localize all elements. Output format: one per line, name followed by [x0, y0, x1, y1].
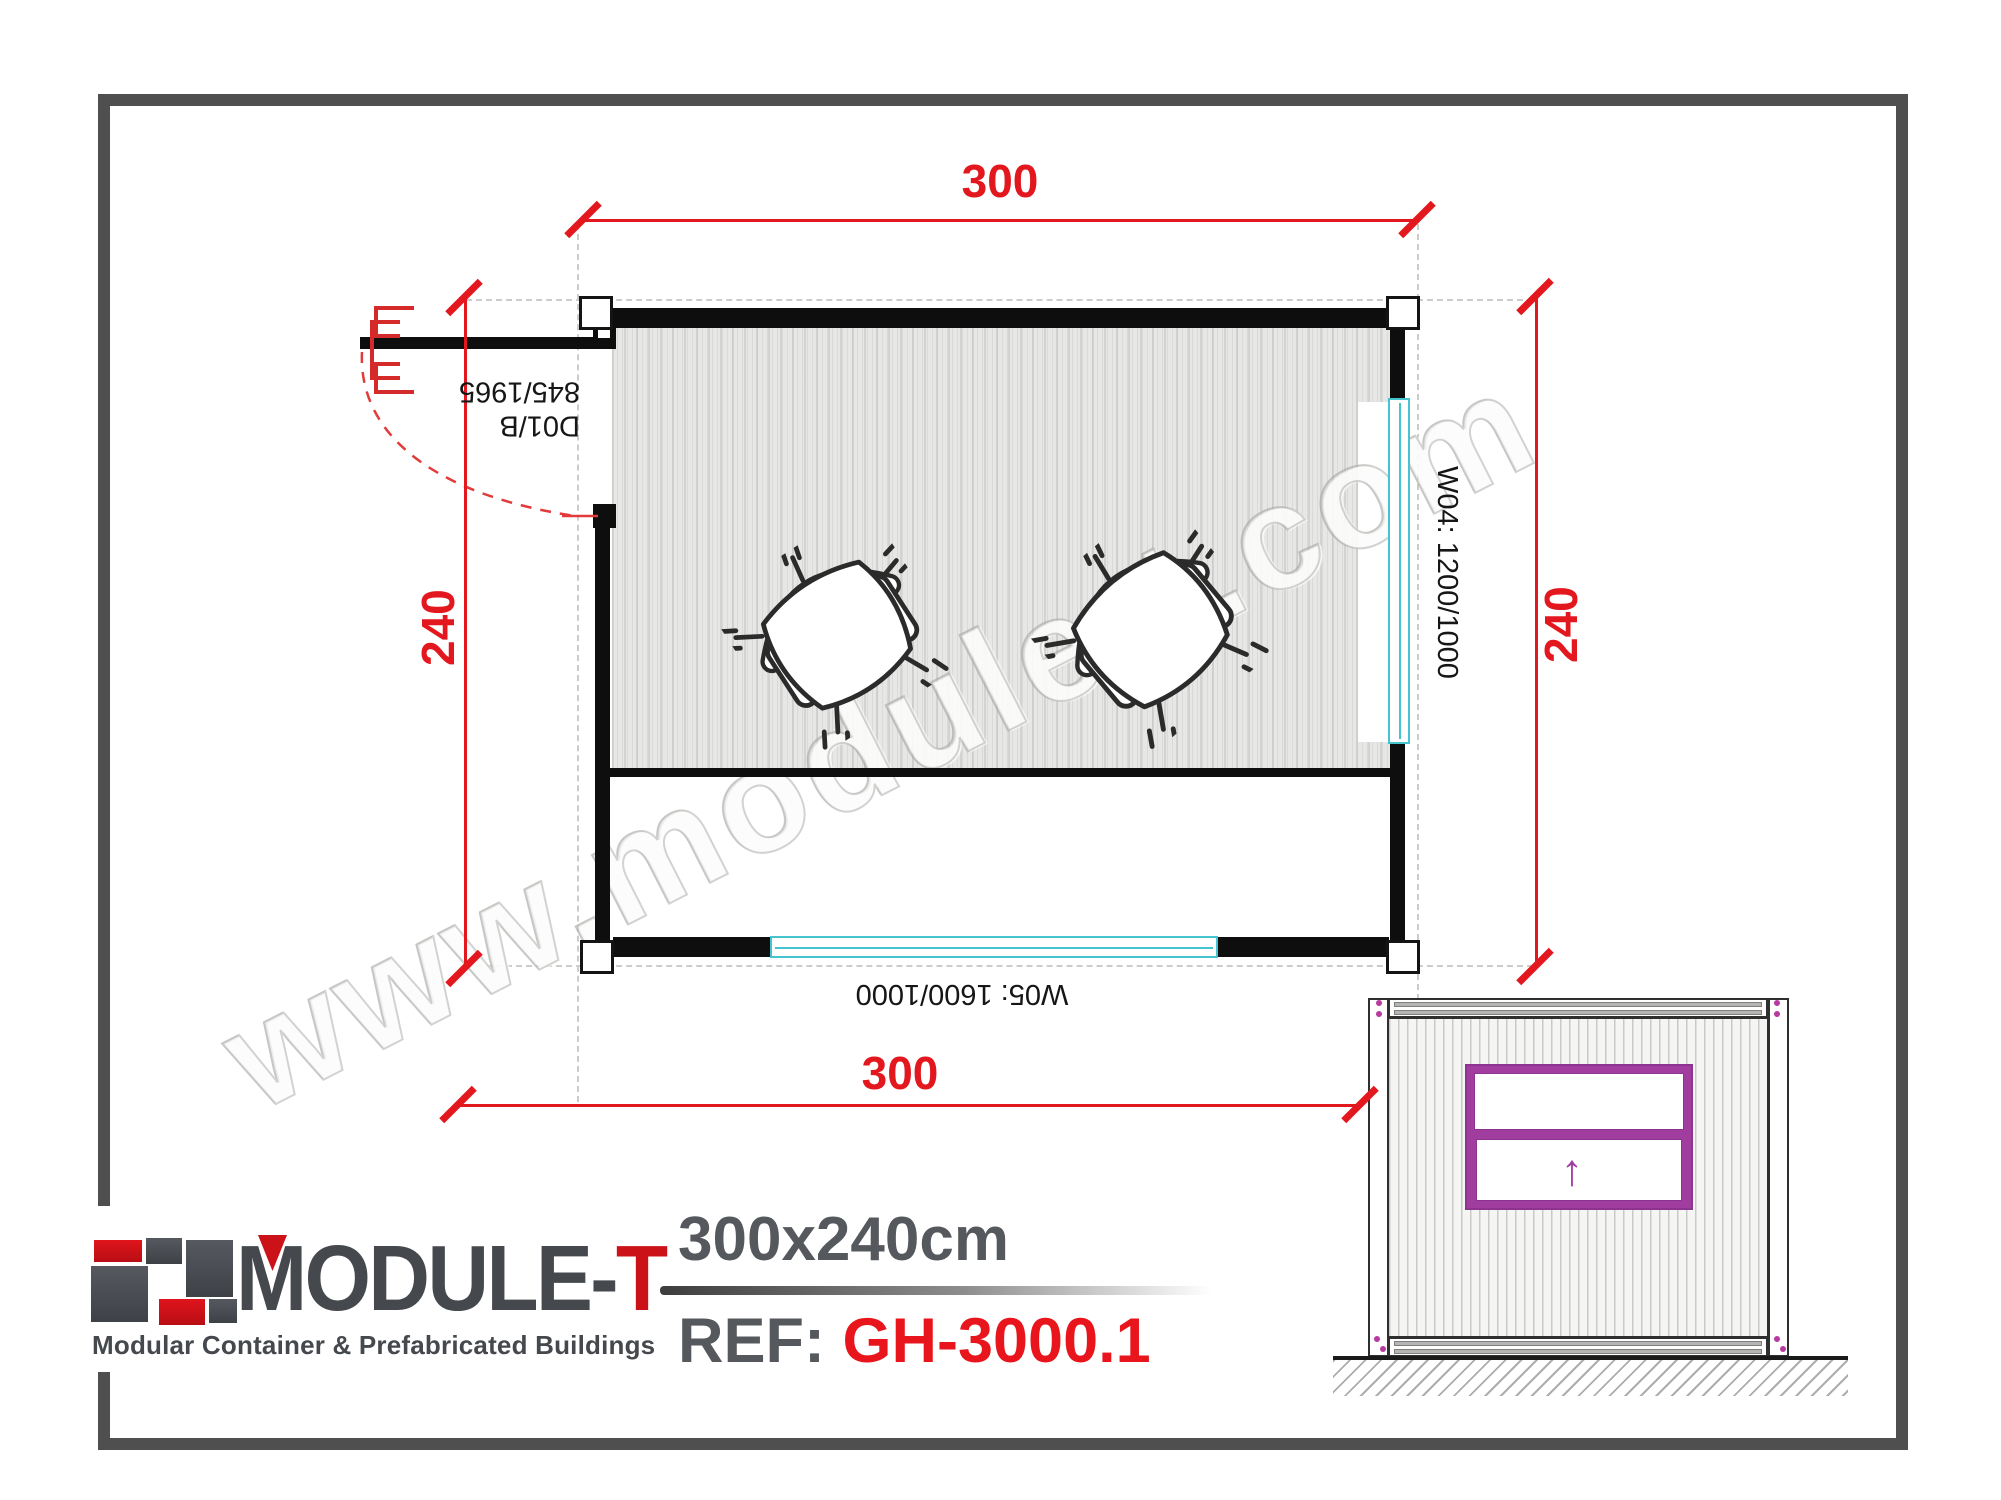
wall-bottom-left [613, 937, 770, 957]
elevation-top-rail [1394, 1010, 1762, 1015]
rivet-dot [1774, 1000, 1780, 1006]
corner-post-bottom-left [580, 940, 614, 974]
reference-line: REF: GH-3000.1 [678, 1305, 1151, 1377]
counter-edge-line [610, 768, 1390, 777]
plan-size-title: 300x240cm [678, 1204, 1009, 1275]
corner-post-top-right [1386, 296, 1420, 330]
rivet-dot [1380, 1346, 1386, 1352]
dim-label-top: 300 [952, 158, 1048, 204]
logo-wordmark-accent: T [616, 1226, 666, 1330]
rivet-dot [1376, 1000, 1382, 1006]
extension-line-top [466, 299, 1533, 301]
dim-label-left: 240 [415, 600, 461, 666]
elevation-top-rail [1394, 1002, 1762, 1007]
window-w05-tag: W05: 1600/1000 [845, 977, 1079, 1011]
reference-value: GH-3000.1 [843, 1306, 1151, 1376]
rivet-dot [1374, 1336, 1380, 1342]
rivet-dot [1780, 1346, 1786, 1352]
dim-line-top [583, 219, 1417, 222]
window-w04 [1388, 398, 1410, 744]
frame-bottom [98, 1438, 1908, 1450]
rivet-dot [1774, 1011, 1780, 1017]
elevation-post-left [1368, 998, 1389, 1357]
wall-right-upper [1390, 328, 1405, 402]
elevation-ground-line [1333, 1356, 1848, 1360]
door-tag-code: D01/B [446, 408, 580, 442]
reference-label: REF: [678, 1306, 825, 1376]
frame-left-upper [98, 94, 110, 1206]
door-tag-size: 845/1965 [446, 374, 580, 408]
logo-wordmark-main: MODULE- [236, 1226, 616, 1330]
rivet-dot [1376, 1011, 1382, 1017]
logo-square [184, 1238, 235, 1299]
frame-top [98, 94, 1908, 106]
corner-post-top-left [579, 296, 613, 330]
elevation-bottom-rail [1394, 1349, 1762, 1354]
elevation-post-right [1768, 998, 1789, 1357]
extension-line-bottom [466, 965, 1533, 967]
dim-line-bottom [458, 1104, 1360, 1107]
frame-right [1896, 94, 1908, 1450]
logo-square [89, 1264, 150, 1324]
elevation-ground-hatch [1333, 1360, 1848, 1396]
elevation-bottom-band [1388, 1337, 1768, 1357]
up-arrow-icon: ↑ [1561, 1146, 1583, 1196]
elevation-window-pane-top [1474, 1073, 1684, 1130]
elevation-bottom-rail [1394, 1341, 1762, 1346]
corner-post-bottom-right [1386, 940, 1420, 974]
door-tag: D01/B 845/1965 [446, 374, 580, 442]
wall-bottom-right [1218, 937, 1389, 957]
frame-left-lower-stub [98, 1372, 110, 1450]
title-divider [660, 1286, 1212, 1295]
window-w04-mullion [1399, 403, 1401, 739]
window-w04-tag: W04: 1200/1000 [1430, 466, 1464, 679]
wall-top [612, 308, 1389, 328]
logo-square [144, 1236, 184, 1266]
dim-label-right: 240 [1538, 597, 1584, 663]
dim-label-bottom: 300 [852, 1050, 948, 1096]
logo-tagline: Modular Container & Prefabricated Buildi… [92, 1330, 655, 1361]
logo-wordmark: MODULE-T [236, 1232, 665, 1325]
logo-square [207, 1297, 239, 1325]
wall-left [595, 505, 610, 942]
rivet-dot [1774, 1336, 1780, 1342]
logo-square [157, 1297, 207, 1327]
window-w05 [770, 936, 1218, 958]
elevation-top-band [1388, 998, 1768, 1018]
wall-right-lower [1390, 740, 1405, 940]
drawing-sheet: www.module-t.com [0, 0, 2001, 1500]
logo-square [92, 1238, 144, 1264]
window-w05-mullion [775, 947, 1213, 949]
